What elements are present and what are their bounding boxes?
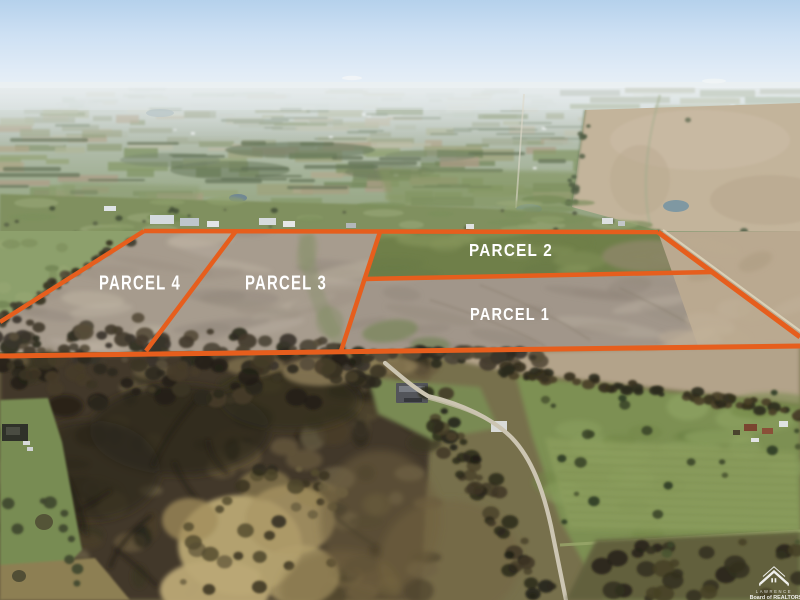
- svg-text:PARCEL 3: PARCEL 3: [245, 273, 327, 295]
- svg-text:Board of REALTORS: Board of REALTORS: [750, 595, 800, 600]
- svg-text:PARCEL 4: PARCEL 4: [99, 273, 181, 295]
- svg-text:LAWRENCE: LAWRENCE: [756, 589, 792, 594]
- svg-text:PARCEL 2: PARCEL 2: [469, 240, 553, 260]
- svg-text:PARCEL 1: PARCEL 1: [470, 304, 550, 324]
